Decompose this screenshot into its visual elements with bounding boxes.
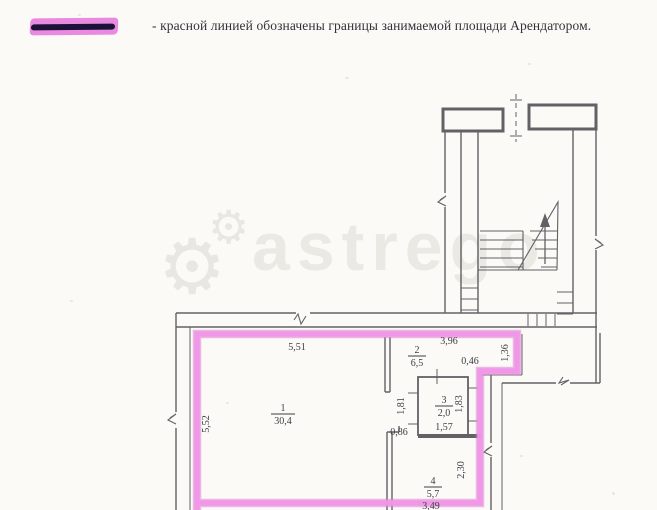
dim-label: 5,52	[201, 415, 212, 433]
svg-text:2: 2	[415, 345, 420, 356]
stair-steps	[478, 202, 558, 270]
svg-text:3: 3	[442, 395, 447, 406]
wall-break-icon	[559, 377, 569, 385]
wall-break-icon	[294, 314, 306, 324]
wall-break-icon	[438, 196, 446, 206]
room-1-label: 1 30,4	[271, 403, 295, 427]
svg-text:5,7: 5,7	[427, 489, 440, 500]
wall-break-icon	[484, 446, 492, 456]
building-walls	[168, 94, 603, 510]
stair-landing-wall	[443, 109, 503, 131]
room-2-label: 2 6,5	[408, 345, 426, 369]
dim-label: 1,36	[500, 344, 511, 362]
svg-text:1: 1	[281, 403, 286, 414]
floor-plan: 5,51 3,96 0,46 1,36 1,81 1,83 1,57 0,86 …	[0, 0, 657, 510]
wall-break-icon	[595, 239, 603, 249]
room-3-label: 3 2,0	[435, 395, 453, 419]
dim-label: 0,86	[390, 427, 408, 438]
svg-text:30,4: 30,4	[274, 416, 292, 427]
stairs-up-arrow-icon	[540, 213, 550, 227]
svg-text:4: 4	[431, 476, 436, 487]
dim-label: 2,30	[456, 461, 467, 479]
room4-wall	[387, 426, 399, 510]
dim-label: 3,96	[440, 336, 458, 347]
room-divider-wall	[385, 337, 390, 392]
room-4-label: 4 5,7	[424, 476, 442, 500]
plan-labels: 5,51 3,96 0,46 1,36 1,81 1,83 1,57 0,86 …	[201, 336, 511, 510]
scanned-floorplan-page: { "page": { "background": "#fbfaf6" }, "…	[0, 0, 657, 510]
dim-label: 1,81	[396, 397, 407, 415]
svg-text:6,5: 6,5	[411, 358, 424, 369]
dim-label: 1,57	[435, 422, 453, 433]
dim-label: 1,83	[454, 395, 465, 413]
dim-label: 0,46	[461, 356, 479, 367]
dim-label: 3,49	[422, 501, 440, 510]
wall-break-icon	[168, 414, 176, 424]
svg-text:2,0: 2,0	[438, 408, 451, 419]
stair-landing-wall	[529, 105, 596, 129]
dim-label: 5,51	[288, 342, 306, 353]
